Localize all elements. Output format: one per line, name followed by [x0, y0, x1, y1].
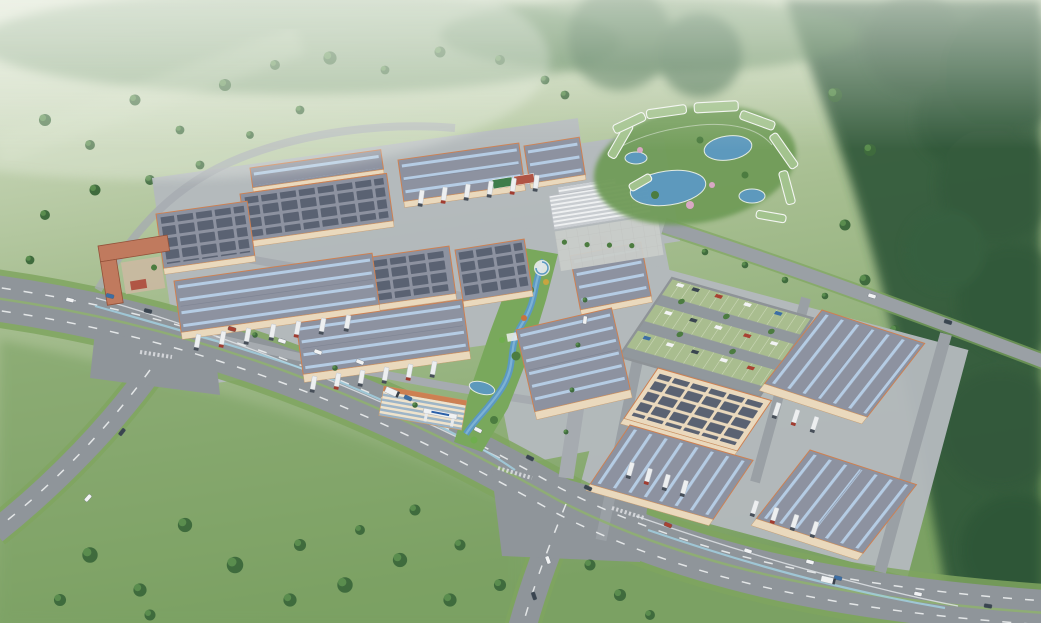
tree: [90, 185, 101, 196]
bush: [490, 416, 498, 424]
tree: [145, 610, 156, 621]
aerial-render-image: [0, 0, 1041, 623]
roadside-tree: [332, 365, 338, 371]
warehouse-building: [455, 239, 533, 307]
roadside-tree: [702, 249, 709, 256]
roadside-tree: [782, 277, 789, 284]
bush: [512, 352, 521, 361]
street-tree: [576, 343, 581, 348]
tree: [337, 577, 352, 592]
roadside-tree: [252, 332, 258, 338]
tree: [355, 525, 365, 535]
car: [583, 316, 588, 324]
garden-tree: [742, 172, 749, 179]
roadside-tree: [412, 402, 418, 408]
tree: [645, 610, 655, 620]
tree: [494, 579, 506, 591]
industrial-park-rendering: [0, 0, 1041, 623]
dormitory-courtyard: [121, 256, 166, 294]
tree: [585, 560, 596, 571]
tree: [283, 593, 296, 606]
autumn-bush: [543, 279, 549, 285]
street-tree: [570, 388, 575, 393]
pond: [739, 189, 765, 203]
pond: [625, 152, 647, 164]
tree: [840, 220, 851, 231]
tree: [40, 210, 50, 220]
tree: [410, 505, 421, 516]
bush: [471, 437, 478, 444]
blossom-tree: [686, 201, 694, 209]
tree: [82, 547, 97, 562]
street-tree: [564, 430, 569, 435]
tree: [26, 256, 35, 265]
roadside-tree: [822, 293, 829, 300]
blossom-tree: [709, 182, 715, 188]
tree: [443, 593, 456, 606]
tree: [294, 539, 306, 551]
tree: [178, 518, 192, 532]
autumn-bush: [521, 315, 527, 321]
tree: [54, 594, 66, 606]
tree: [860, 275, 871, 286]
street-tree: [583, 298, 588, 303]
garden-tree: [651, 191, 659, 199]
bush: [499, 337, 505, 343]
fountain-plaza: [506, 332, 517, 342]
tree: [227, 557, 244, 574]
tree: [133, 583, 146, 596]
tree: [614, 589, 626, 601]
roadside-tree: [742, 262, 749, 269]
tree: [455, 540, 466, 551]
warehouse-building: [156, 201, 256, 274]
tree: [393, 553, 407, 567]
